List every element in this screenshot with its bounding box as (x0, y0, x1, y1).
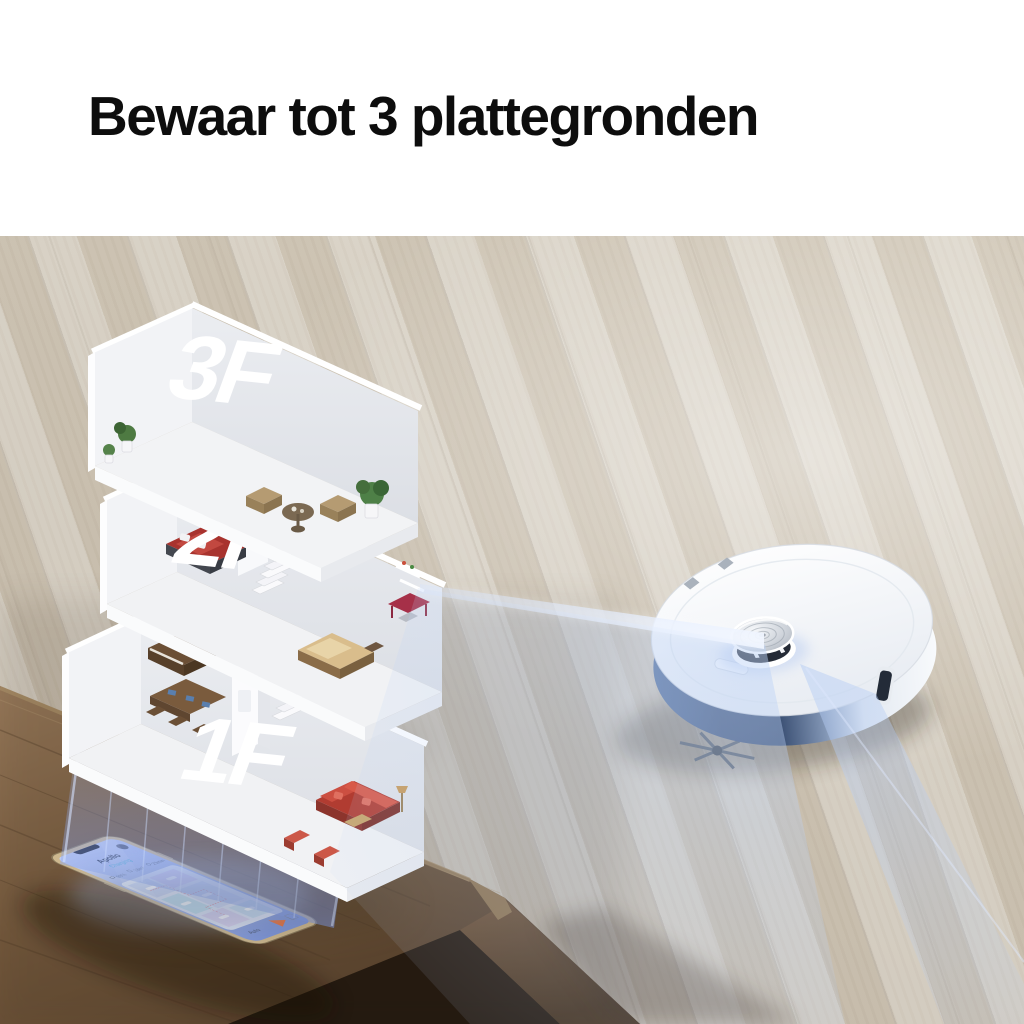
header-band: Bewaar tot 3 plattegronden (0, 0, 1024, 236)
hero-title: Bewaar tot 3 plattegronden (88, 84, 758, 148)
hero-banner: Apollo Charging 98% 18m² 23min (0, 0, 1024, 1024)
